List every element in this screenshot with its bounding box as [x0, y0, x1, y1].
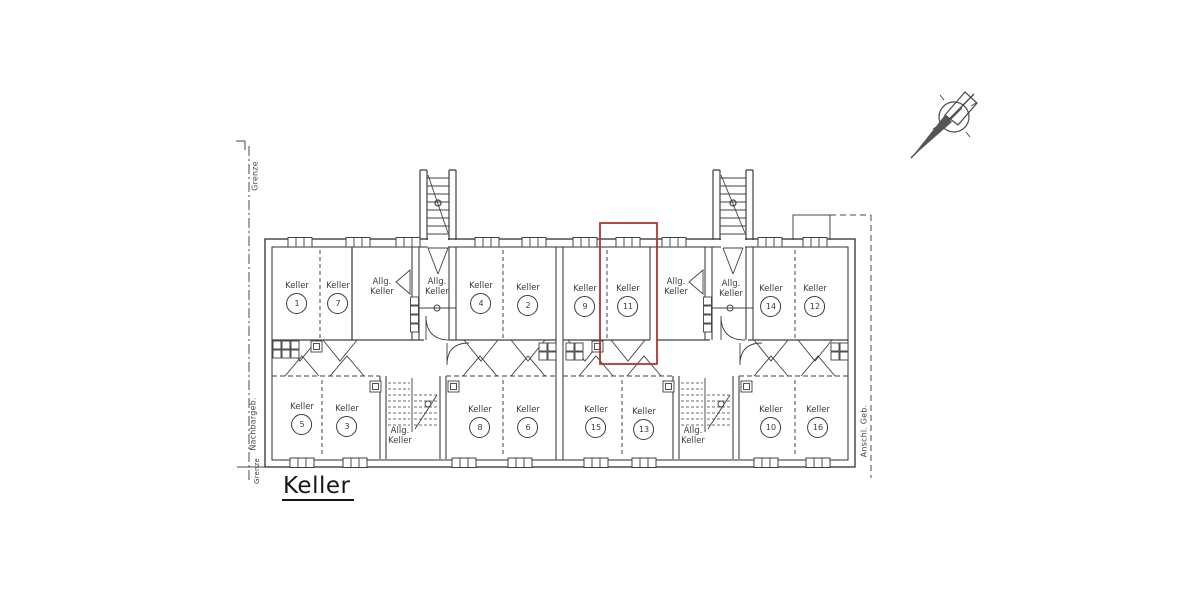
site-boundary-lines — [236, 141, 871, 482]
interior-walls-bottom-row — [322, 380, 795, 456]
stair-tower-right — [713, 170, 753, 240]
floor-plan-canvas: Grenze Nachbargeb. Grenze Anschl. Geb. K… — [0, 0, 1200, 600]
north-arrow-icon — [911, 92, 977, 158]
stair-tower-left — [420, 170, 456, 240]
building-outer-walls — [265, 239, 855, 467]
stair-core-right — [673, 376, 739, 459]
window-symbols — [288, 238, 830, 468]
door-symbols — [283, 248, 835, 376]
chimney-blocks — [273, 297, 848, 392]
interior-walls-top-row — [272, 247, 848, 460]
floor-plan-drawing — [0, 0, 1200, 600]
stair-core-left — [380, 376, 446, 459]
